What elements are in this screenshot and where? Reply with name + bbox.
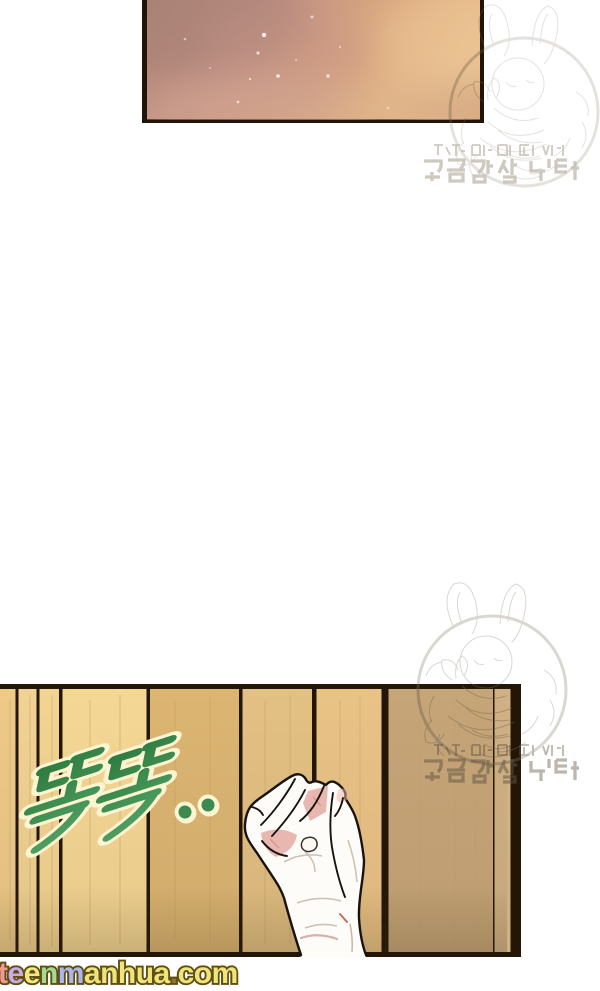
svg-text:teenmanhua.com: teenmanhua.com	[0, 957, 238, 990]
